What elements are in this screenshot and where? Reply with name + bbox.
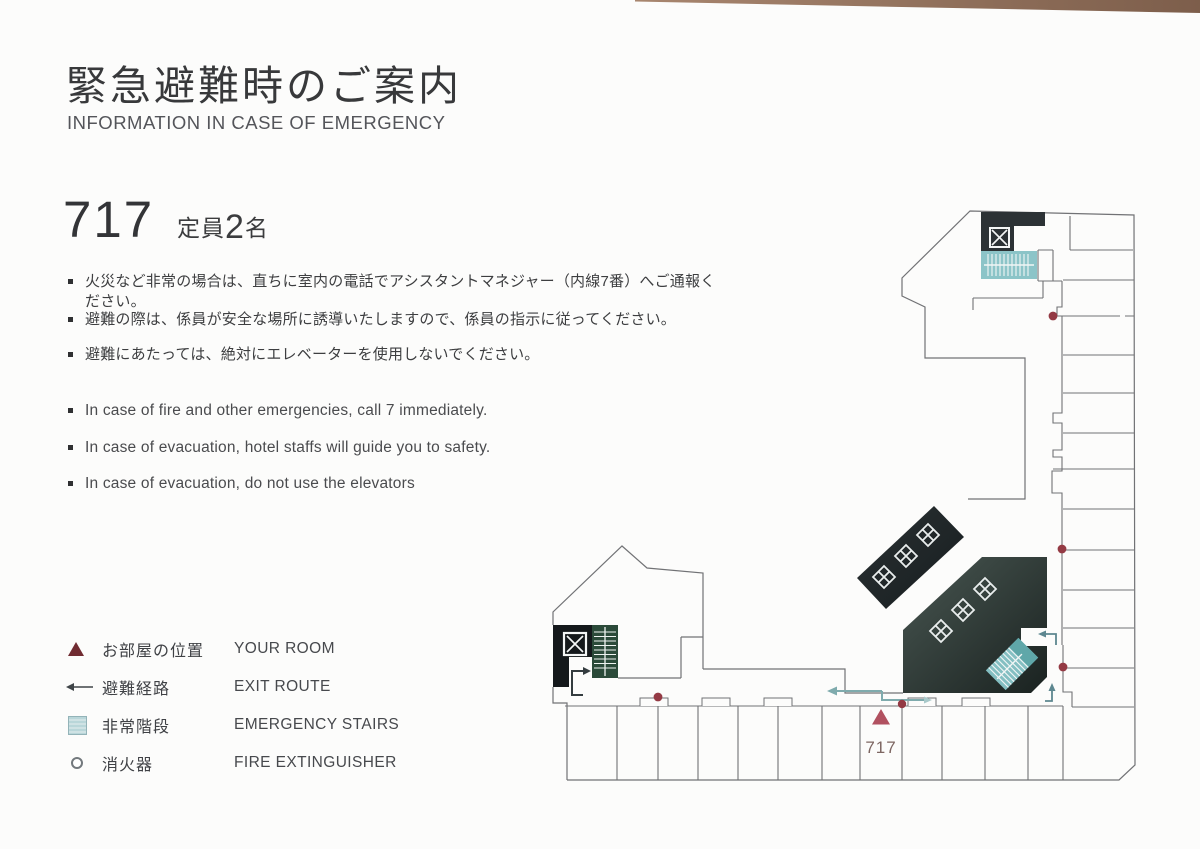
elevator-lobby bbox=[903, 557, 1047, 693]
exit-arrow-to-south-stairs bbox=[572, 667, 591, 695]
legend-label-en: YOUR ROOM bbox=[234, 640, 335, 658]
right-rooms-walls bbox=[1053, 216, 1134, 707]
north-emergency-stairs bbox=[981, 251, 1037, 279]
exit-route-arrow-icon bbox=[66, 681, 102, 693]
your-room-triangle-icon bbox=[66, 642, 102, 656]
fire-extinguisher-icon bbox=[66, 757, 102, 769]
room-capacity: 定員2名 bbox=[177, 206, 269, 245]
bullet-icon bbox=[68, 408, 73, 413]
room-number: 717 bbox=[63, 190, 154, 249]
bullet-icon bbox=[68, 317, 73, 322]
legend-label-ja: 消火器 bbox=[102, 751, 234, 775]
bullet-icon bbox=[68, 352, 73, 357]
legend-label-en: EMERGENCY STAIRS bbox=[234, 716, 399, 734]
legend-label-ja: 非常階段 bbox=[102, 713, 234, 737]
legend-row-exit-route: 避難経路 EXIT ROUTE bbox=[66, 674, 331, 700]
legend-label-en: EXIT ROUTE bbox=[234, 678, 331, 696]
exit-arrow-into-lobby bbox=[1038, 631, 1056, 646]
table-edge bbox=[635, 0, 1200, 13]
legend-label-en: FIRE EXTINGUISHER bbox=[234, 754, 397, 772]
your-room-number: 717 bbox=[865, 738, 896, 757]
capacity-unit: 名 bbox=[245, 215, 269, 241]
bullet-icon bbox=[68, 279, 73, 284]
legend-row-emergency-stairs: 非常階段 EMERGENCY STAIRS bbox=[66, 712, 399, 738]
bottom-rooms-walls bbox=[565, 706, 1063, 780]
bullet-icon bbox=[68, 445, 73, 450]
door-notches bbox=[640, 698, 990, 706]
legend-label-ja: 避難経路 bbox=[102, 675, 234, 699]
bullet-icon bbox=[68, 481, 73, 486]
legend-row-fire-extinguisher: 消火器 FIRE EXTINGUISHER bbox=[66, 750, 397, 776]
capacity-label: 定員 bbox=[177, 215, 225, 241]
emergency-stairs-icon bbox=[66, 716, 102, 735]
exit-arrow-up-corridor bbox=[1045, 683, 1056, 701]
legend-row-your-room: お部屋の位置 YOUR ROOM bbox=[66, 636, 335, 662]
page-title-japanese: 緊急避難時のご案内 bbox=[66, 52, 462, 112]
page-title-english: INFORMATION IN CASE OF EMERGENCY bbox=[67, 112, 445, 134]
your-room-marker bbox=[872, 709, 890, 725]
floor-plan: 717 bbox=[540, 195, 1170, 795]
capacity-number: 2 bbox=[225, 208, 245, 246]
south-emergency-stairs bbox=[592, 625, 618, 678]
building-outline bbox=[567, 211, 1135, 780]
legend-label-ja: お部屋の位置 bbox=[102, 637, 234, 661]
